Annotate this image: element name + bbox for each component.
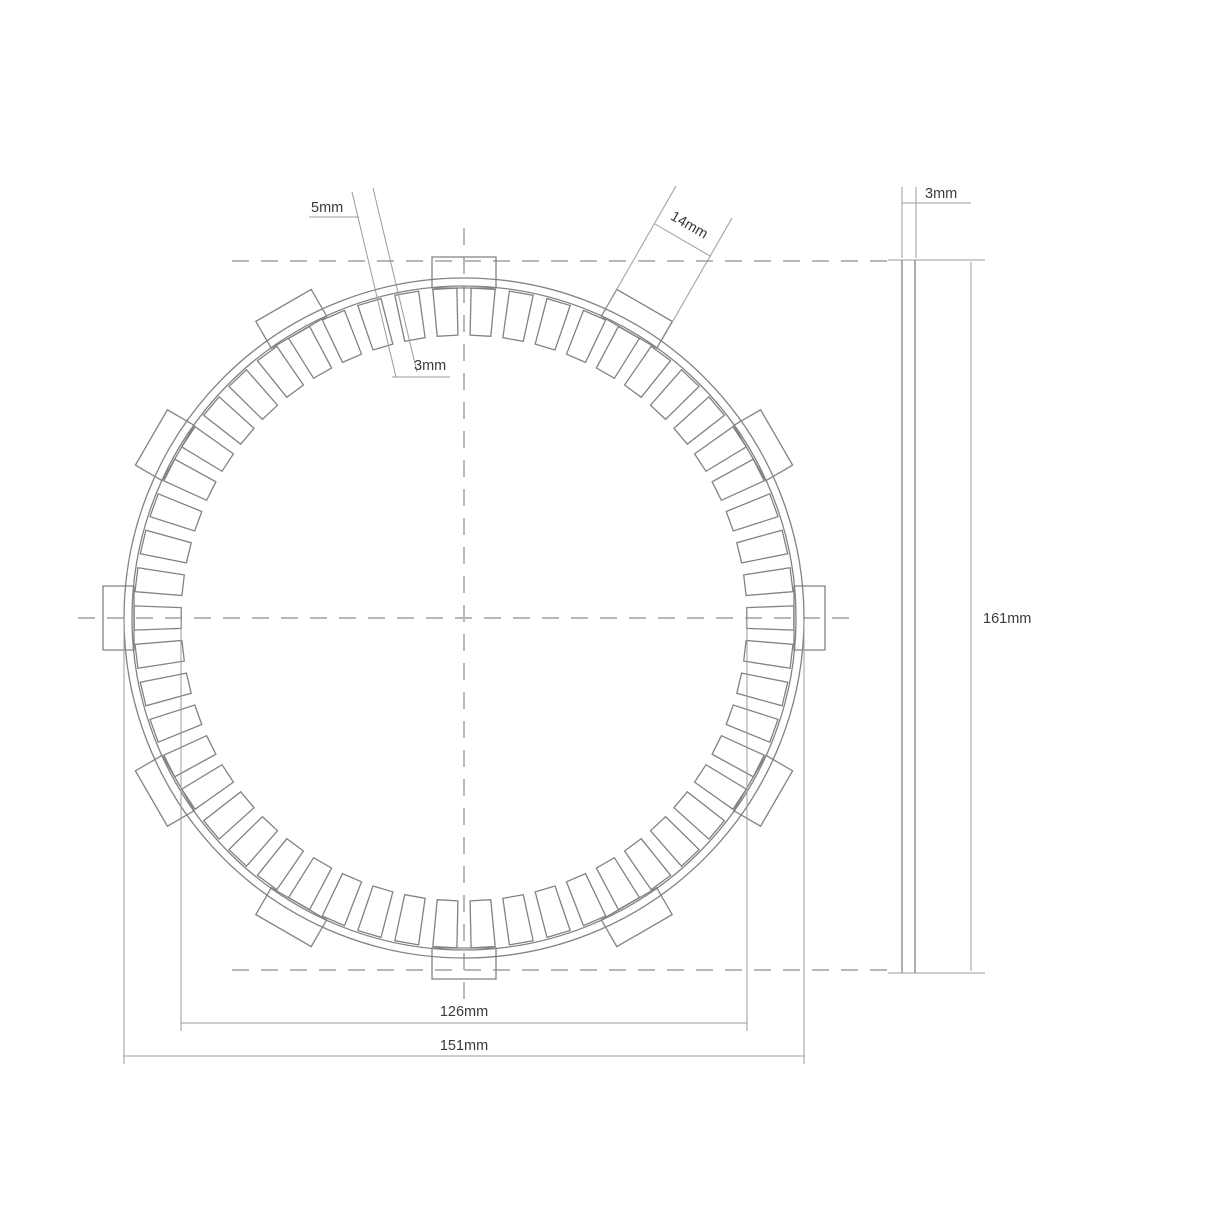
friction-pad <box>744 641 793 669</box>
clutch-plate-technical-drawing: 5mm 3mm 14mm 3mm 161mm 126mm 151mm <box>0 0 1214 1214</box>
friction-pad <box>712 736 764 777</box>
friction-pad <box>567 874 606 926</box>
friction-pad <box>322 310 361 362</box>
friction-pad <box>470 900 495 948</box>
pad-slot-width-label: 5mm <box>311 200 343 216</box>
friction-pad <box>358 886 393 937</box>
friction-pad <box>503 895 533 945</box>
friction-pad <box>726 494 778 531</box>
friction-pad <box>503 291 533 341</box>
friction-pad <box>737 530 788 563</box>
slot-leader-line-right <box>373 188 417 372</box>
friction-pad <box>140 530 191 563</box>
friction-pad <box>744 568 793 596</box>
drive-tab <box>135 410 194 481</box>
friction-pad <box>737 673 788 706</box>
friction-pad <box>535 886 570 937</box>
friction-pad <box>596 858 639 910</box>
dimensions: 5mm 3mm 14mm 3mm 161mm 126mm 151mm <box>124 186 1031 1064</box>
friction-pad <box>433 900 458 948</box>
drive-tab <box>135 755 194 826</box>
friction-pad <box>140 673 191 706</box>
friction-pad <box>289 858 332 910</box>
friction-pad <box>433 288 458 336</box>
friction-pad <box>150 494 202 531</box>
tab-width-ext-line-left <box>606 186 676 308</box>
friction-pad <box>135 568 184 596</box>
friction-pad <box>470 288 495 336</box>
friction-pad <box>322 874 361 926</box>
inner-diameter-label: 126mm <box>440 1004 488 1020</box>
friction-pad <box>150 705 202 742</box>
thickness-label: 3mm <box>925 186 957 202</box>
drive-tab <box>734 410 793 481</box>
pad-gap-label: 3mm <box>414 358 446 374</box>
friction-pad <box>726 705 778 742</box>
friction-pad <box>712 459 764 500</box>
friction-pad <box>596 326 639 378</box>
side-view <box>888 260 985 973</box>
friction-pad <box>164 459 216 500</box>
tab-width-label: 14mm <box>668 209 711 243</box>
drawing-canvas: 5mm 3mm 14mm 3mm 161mm 126mm 151mm <box>0 0 1214 1214</box>
outer-diameter-label: 151mm <box>440 1038 488 1054</box>
overall-height-label: 161mm <box>983 611 1031 627</box>
friction-pad <box>567 310 606 362</box>
friction-pad <box>535 299 570 350</box>
friction-pad <box>164 736 216 777</box>
friction-pad <box>395 895 425 945</box>
centerlines <box>78 228 888 1008</box>
friction-pad <box>289 326 332 378</box>
friction-pad <box>135 641 184 669</box>
drive-tab <box>734 755 793 826</box>
